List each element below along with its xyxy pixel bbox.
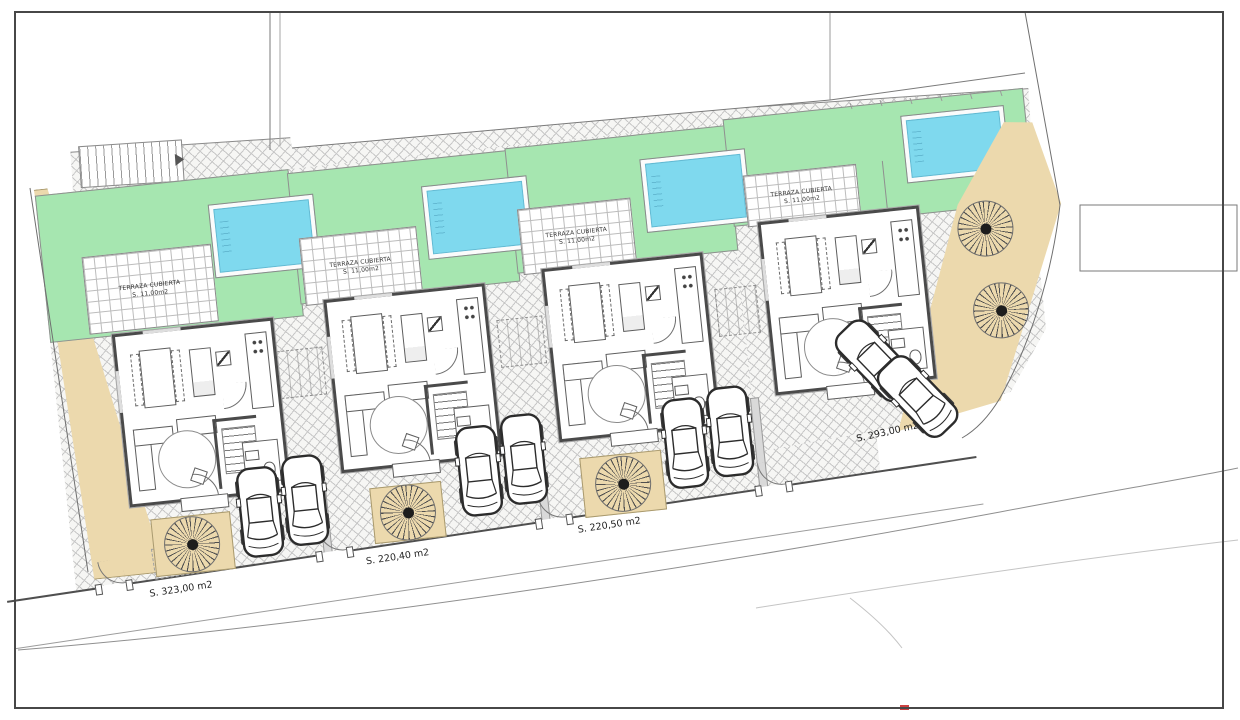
shower bbox=[861, 238, 877, 254]
red-registration-mark bbox=[900, 705, 909, 710]
interior-wall bbox=[424, 381, 468, 389]
carport-marking bbox=[714, 285, 761, 337]
terrace-villa1: TERRAZA CUBIERTA S. 11,00m2 bbox=[81, 244, 218, 335]
carport-marking bbox=[496, 315, 547, 368]
plot-area-label-villa2: S. 220,40 m2 bbox=[365, 547, 430, 567]
sink bbox=[674, 384, 689, 395]
stove bbox=[463, 303, 477, 324]
plot-area-label-villa1: S. 323,00 m2 bbox=[149, 579, 214, 599]
site-plan-sheet: TERRAZA CUBIERTA S. 11,00m2 TERRAZA CUBI… bbox=[0, 0, 1240, 720]
bed bbox=[189, 347, 216, 397]
shower bbox=[215, 350, 231, 366]
carport-marking bbox=[276, 347, 327, 400]
stove bbox=[680, 272, 694, 293]
interior-wall bbox=[212, 415, 256, 423]
plot-area-label-villa3: S. 220,50 m2 bbox=[577, 515, 642, 535]
shower bbox=[645, 285, 661, 301]
car-icon bbox=[496, 411, 551, 507]
bed bbox=[618, 282, 645, 332]
bed bbox=[835, 235, 862, 285]
door-arc bbox=[651, 316, 678, 343]
door-arc bbox=[433, 347, 460, 374]
interior-wall bbox=[642, 350, 686, 358]
villa-site-band: TERRAZA CUBIERTA S. 11,00m2 TERRAZA CUBI… bbox=[30, 35, 1183, 707]
stove bbox=[897, 226, 911, 247]
pool-villa2 bbox=[422, 176, 533, 258]
sink bbox=[245, 450, 260, 461]
door-arc bbox=[867, 270, 894, 297]
stove bbox=[251, 338, 265, 359]
bed bbox=[400, 313, 427, 363]
shower bbox=[427, 316, 443, 332]
interior-wall bbox=[858, 303, 902, 311]
car-icon bbox=[277, 452, 332, 548]
pool-villa3 bbox=[640, 149, 751, 231]
car-icon bbox=[703, 383, 758, 479]
door-arc bbox=[222, 382, 249, 409]
